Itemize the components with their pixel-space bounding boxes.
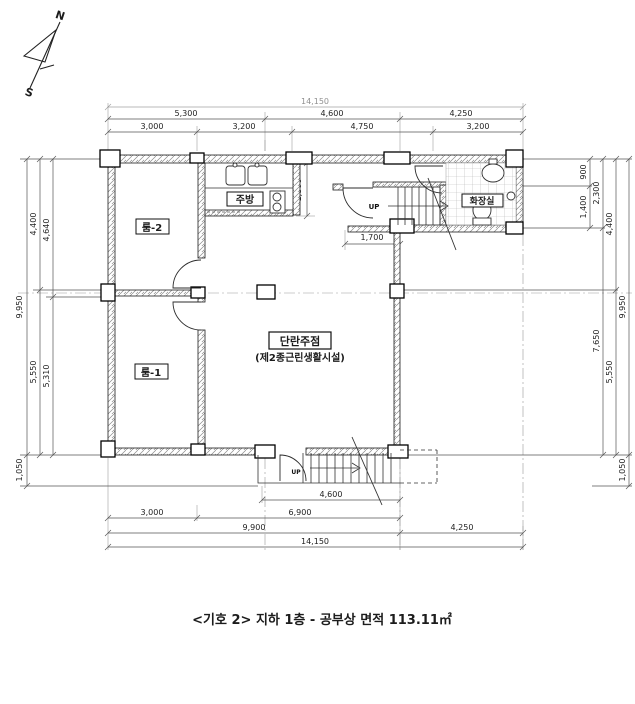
dim-top-4600: 4,600 [321,109,344,118]
dim-top-4250: 4,250 [450,109,473,118]
kitchen-sink-2 [248,166,267,185]
room2-label: 룸-2 [142,222,162,234]
room1-label: 룸-1 [141,367,161,379]
dim-bottom-overall: 14,150 [301,537,329,546]
hall-name-label: 단란주점 [280,334,320,348]
floor-plan-drawing: 14,150 5,300 4,600 4,250 3,000 3,200 4,7… [0,0,635,700]
dim-right-7650: 7,650 [592,330,601,353]
dim-top-overall: 14,150 [301,97,329,106]
bathroom-label: 화장실 [470,195,495,207]
dim-right-1400: 1,400 [579,196,588,219]
toilet-tank [473,218,491,225]
kitchen-sink-1-faucet [233,163,237,167]
stove-burner-1 [273,193,281,201]
kitchen-sink-2-faucet [255,163,259,167]
dim-bottom-3000: 3,000 [141,508,164,517]
dim-left-4400: 4,400 [29,213,38,236]
caption: <기호 2> 지하 1층 - 공부상 면적 113.11㎡ [192,612,452,628]
dim-bottom-6900: 6,900 [289,508,312,517]
dim-right-1050: 1,050 [618,459,627,482]
dim-top-3200a: 3,200 [233,122,256,131]
stove-burner-2 [273,203,281,211]
dim-left-5550: 5,550 [29,361,38,384]
dim-top-3200b: 3,200 [467,122,490,131]
dim-left-5310: 5,310 [42,365,51,388]
bathroom-sink-faucet [489,159,497,164]
dim-right-2300: 2,300 [592,182,601,205]
floor-plan-page: 14,150 5,300 4,600 4,250 3,000 3,200 4,7… [0,0,635,700]
dim-right-4400: 4,400 [605,213,614,236]
dim-bottom-9900: 9,900 [243,523,266,532]
bathroom-sink [482,164,504,182]
kitchen-label: 주방 [236,193,255,206]
dim-left-4640: 4,640 [42,219,51,242]
hall-use-label: (제2종근린생활시설) [255,351,345,364]
dim-right-overall: 9,950 [618,296,627,319]
kitchen-sink-1 [226,166,245,185]
dim-top-3000: 3,000 [141,122,164,131]
up-label-entrance: UP [291,469,301,476]
bathroom-wall-fixture [507,192,515,200]
dim-left-1050: 1,050 [15,459,24,482]
dim-bottom-stair: 4,600 [320,490,343,499]
up-label-stair: UP [369,203,380,211]
dim-right-900: 900 [579,164,588,179]
dim-top-5300: 5,300 [175,109,198,118]
bathroom-area [446,159,516,225]
dim-right-5550: 5,550 [605,361,614,384]
dim-left-overall: 9,950 [15,296,24,319]
dim-bottom-4250: 4,250 [451,523,474,532]
dim-top-4750: 4,750 [351,122,374,131]
dim-entry-width: 1,700 [361,233,384,242]
